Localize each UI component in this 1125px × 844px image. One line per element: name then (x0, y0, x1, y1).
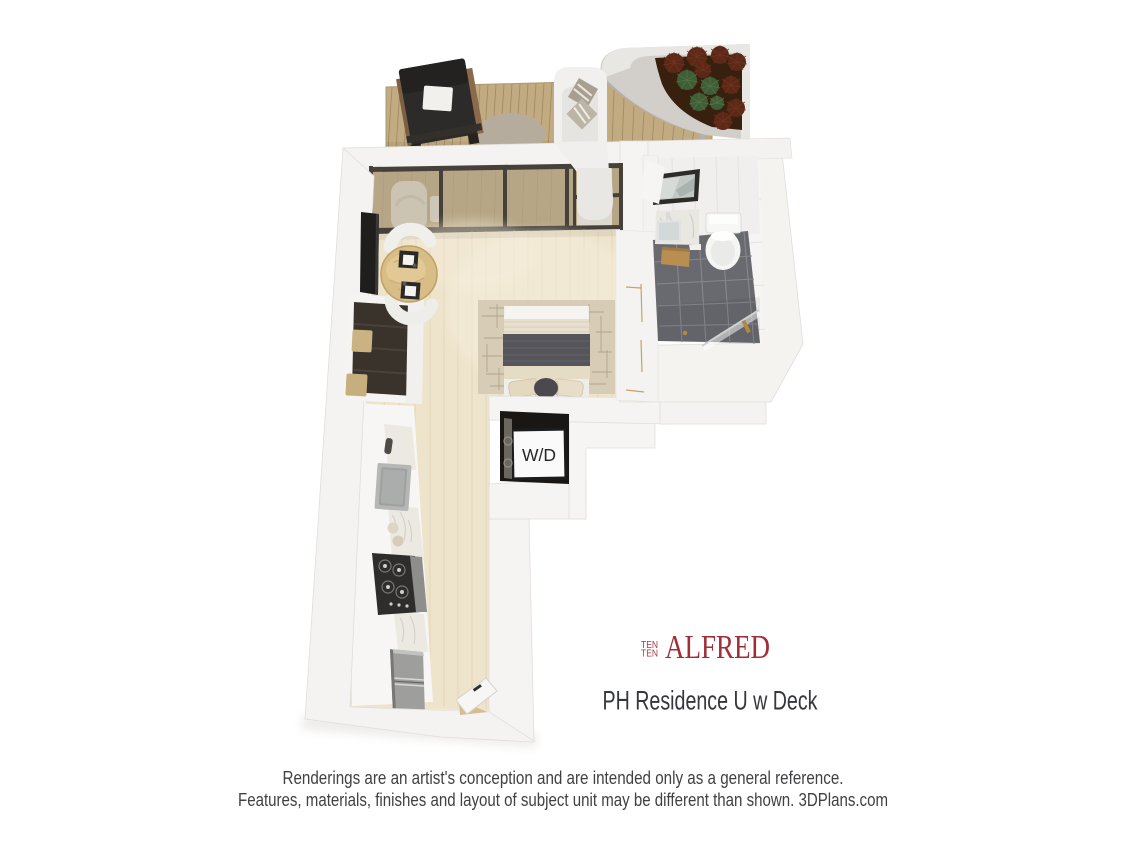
svg-text:ALFRED: ALFRED (665, 629, 770, 666)
svg-text:Renderings are an artist's con: Renderings are an artist's conception an… (283, 768, 844, 788)
svg-text:TEN: TEN (641, 649, 658, 660)
svg-text:W/D: W/D (522, 445, 556, 465)
svg-text:Features, materials, finishes: Features, materials, finishes and layout… (238, 790, 888, 810)
svg-text:PH Residence U w Deck: PH Residence U w Deck (603, 686, 818, 716)
